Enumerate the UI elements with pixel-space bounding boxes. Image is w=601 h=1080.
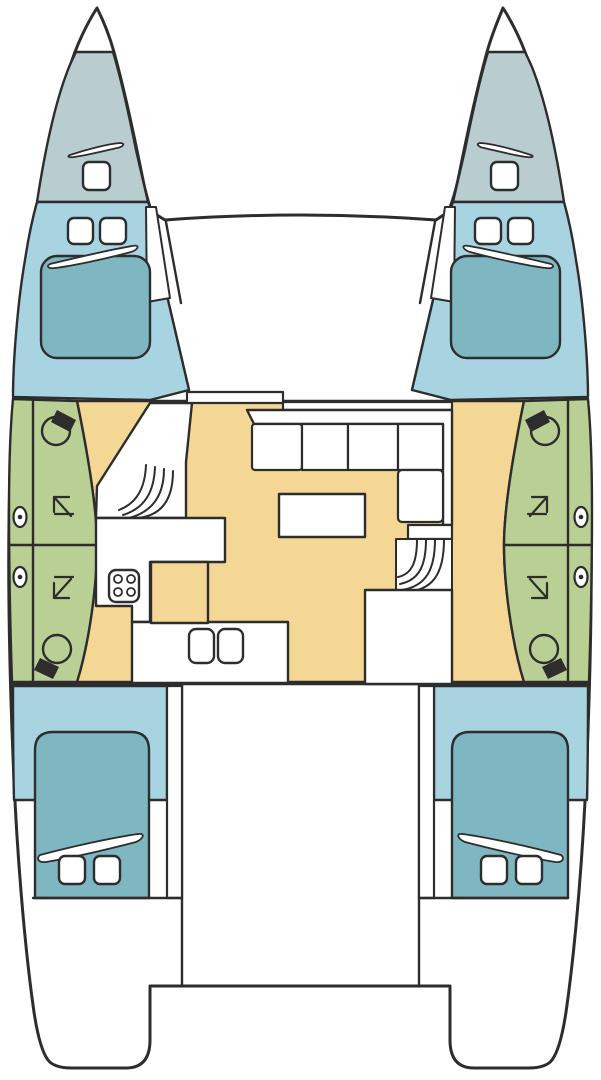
galley-island <box>151 562 208 623</box>
fwd-hatch-starboard-2 <box>508 218 533 244</box>
stove <box>109 570 139 602</box>
fwd-hatch-starboard-1 <box>475 218 501 244</box>
porthole-starboard-2-dot <box>579 575 584 580</box>
stairs-starboard-landing <box>408 525 452 539</box>
aft-hatch-starboard-2 <box>516 856 542 884</box>
fwd-bed-starboard <box>451 256 560 358</box>
aft-bed-port <box>35 732 149 898</box>
sofa-cushion-3 <box>348 424 398 470</box>
forepeak-hatch-starboard <box>491 162 518 190</box>
porthole-port-2-dot <box>18 575 23 580</box>
fwd-bed-port <box>41 256 150 358</box>
aft-hatch-port-2 <box>94 856 120 884</box>
porthole-port-1-dot <box>18 515 23 520</box>
sink-1 <box>189 629 214 663</box>
sofa-cushion-2 <box>302 424 348 470</box>
aft-sidedeck-starboard <box>419 686 434 898</box>
porthole-starboard-1-dot <box>579 515 584 520</box>
aft-sidedeck-port <box>167 686 182 898</box>
aft-bed-starboard <box>452 732 568 898</box>
floorplan-svg <box>0 0 601 1080</box>
aft-hatch-starboard-1 <box>481 856 507 884</box>
aft-door-opening <box>365 590 452 684</box>
sink-2 <box>218 629 243 663</box>
fwd-hatch-port-2 <box>100 218 126 244</box>
catamaran-layout-diagram <box>0 0 601 1080</box>
salon-table <box>279 494 365 537</box>
sofa-cushion-5 <box>398 470 443 522</box>
aft-hatch-port-1 <box>59 856 85 884</box>
head-compartment-starboard <box>504 399 592 682</box>
salon-front-step-left <box>187 392 283 403</box>
head-compartment-port <box>9 399 97 682</box>
fwd-hatch-port-1 <box>68 218 93 244</box>
sofa-cushion-4 <box>398 424 443 470</box>
forepeak-hatch-port <box>83 162 110 190</box>
sofa-cushion-1 <box>252 424 302 470</box>
